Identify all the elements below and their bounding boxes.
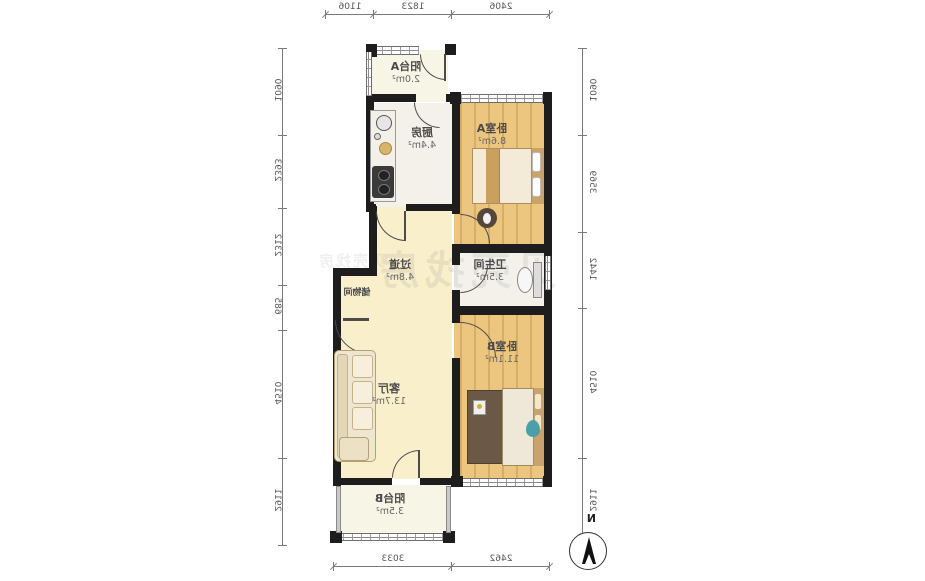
room-area: 3.5m² — [360, 506, 420, 518]
dim-left-3: 4510 — [587, 362, 597, 402]
bedroom-b-right-wall — [452, 358, 460, 478]
balcony-b-door-leaf — [418, 450, 420, 478]
dim-left-2: 1442 — [587, 249, 597, 289]
room-name: 客厅 — [359, 382, 419, 396]
dim-tick — [578, 48, 587, 49]
room-name: 厨房 — [397, 126, 447, 140]
dim-right-3: 685 — [272, 286, 282, 326]
bed-a-pillow — [532, 177, 541, 197]
room-name: 卧室A — [462, 122, 522, 136]
room-area: 11.1m² — [472, 354, 532, 366]
dim-bottom-1: 3033 — [334, 554, 452, 564]
wardrobe-knob — [477, 404, 482, 409]
wall-corner — [543, 476, 552, 487]
dim-right-2: 2312 — [272, 225, 282, 265]
dim-left-1: 3569 — [587, 162, 597, 202]
balcony-b-side-wall — [336, 486, 341, 533]
room-area: 13.7m² — [359, 396, 419, 408]
dim-line-top — [326, 14, 550, 15]
kitchen-faucet — [374, 133, 381, 140]
entry-door-leaf — [444, 54, 446, 81]
room-name: 过道 — [373, 258, 427, 272]
kitchen-bottom-wall — [366, 204, 376, 211]
label-storage: 储物间 — [337, 288, 377, 299]
stove-burner — [378, 170, 390, 181]
dim-top-2: 1106 — [326, 2, 374, 12]
room-area: 2.0m² — [376, 74, 436, 86]
kitchen-bottom-wall — [406, 204, 456, 211]
dim-tick — [578, 458, 587, 459]
kitchen-door-leaf — [404, 211, 406, 241]
bathroom-bottom-wall — [452, 306, 552, 315]
sofa-cushion — [352, 355, 373, 378]
room-area: 4.8m² — [373, 272, 427, 284]
dim-right-0: 1090 — [272, 70, 282, 110]
dim-top-0: 2406 — [452, 2, 550, 12]
bathroom-top-wall — [452, 244, 552, 253]
room-name: 阳台A — [376, 60, 436, 74]
dim-bottom-0: 2462 — [452, 554, 550, 564]
bedroom-b-window — [463, 478, 543, 487]
dim-right-1: 2393 — [272, 150, 282, 190]
dim-tick — [278, 208, 287, 209]
bedroom-a-right-wall — [452, 94, 460, 214]
bedroom-a-window — [461, 94, 543, 103]
label-kitchen: 厨房 4.4m² — [397, 126, 447, 152]
living-bottom-wall — [341, 478, 392, 485]
stove-burner — [378, 184, 390, 195]
dim-top-1: 1823 — [374, 2, 452, 12]
room-name: 卫生间 — [460, 258, 520, 272]
dim-right-4: 4510 — [272, 373, 282, 413]
balcony-a-window — [377, 46, 419, 55]
kitchen-sink — [376, 115, 392, 131]
dim-tick — [278, 135, 287, 136]
room-name: 储物间 — [337, 288, 377, 299]
room-name: 阳台B — [360, 492, 420, 506]
bed-a-pillow — [532, 152, 541, 172]
storage-door-leaf — [343, 318, 369, 321]
dim-line-left — [582, 48, 583, 545]
dim-tick — [278, 545, 287, 546]
bedroom-a-rug-detail — [483, 213, 491, 224]
wall-corner — [445, 44, 456, 55]
room-area: 4.4m² — [397, 140, 447, 152]
sofa-cushion — [352, 407, 373, 430]
label-bedroom-b: 卧室B 11.1m² — [472, 340, 532, 366]
label-living-room: 客厅 13.7m² — [359, 382, 419, 408]
bathroom-window — [545, 256, 551, 290]
dim-line-bottom — [334, 566, 550, 567]
label-balcony-a: 阳台A 2.0m² — [376, 60, 436, 86]
balcony-a-divider — [372, 94, 416, 102]
kitchen-board — [379, 142, 392, 155]
toilet-tank — [533, 262, 542, 298]
dim-line-right — [282, 48, 283, 545]
balcony-b-window — [342, 533, 443, 541]
balcony-a-side-window — [366, 52, 372, 96]
label-hallway: 过道 4.8m² — [373, 258, 427, 284]
wall-corner — [451, 476, 463, 487]
wall-corner — [543, 92, 552, 104]
storage-top-wall — [335, 268, 377, 276]
label-balcony-b: 阳台B 3.5m² — [360, 492, 420, 518]
balcony-b-side-wall — [446, 486, 451, 533]
dim-right-5: 2911 — [272, 480, 282, 520]
label-bedroom-a: 卧室A 8.6m² — [462, 122, 522, 148]
bed-a-blanket — [486, 149, 500, 203]
room-name: 卧室B — [472, 340, 532, 354]
mirrored-floorplan: 贝壳找房 贝壳找房 — [0, 0, 925, 581]
dim-tick — [578, 308, 587, 309]
floorplan-screenshot: 贝壳找房 贝壳找房 — [0, 0, 925, 581]
outer-wall-left — [544, 94, 552, 486]
dim-tick — [278, 48, 287, 49]
bedroom-b-right-wall — [452, 315, 460, 323]
room-area: 3.5m² — [460, 272, 520, 284]
dim-tick — [578, 232, 587, 233]
dim-tick — [578, 135, 587, 136]
bathroom-right-wall — [452, 253, 460, 265]
dim-left-0: 1090 — [587, 70, 597, 110]
armchair — [339, 437, 369, 461]
dim-tick — [278, 330, 287, 331]
compass-north-label: N — [587, 512, 596, 525]
bed-b-teal-throw — [526, 420, 540, 437]
compass-needle-notch — [585, 554, 593, 564]
dim-tick — [278, 458, 287, 459]
bed-b-pillow — [534, 393, 542, 410]
room-area: 8.6m² — [462, 136, 522, 148]
living-bottom-wall — [420, 478, 451, 485]
label-bathroom: 卫生间 3.5m² — [460, 258, 520, 284]
